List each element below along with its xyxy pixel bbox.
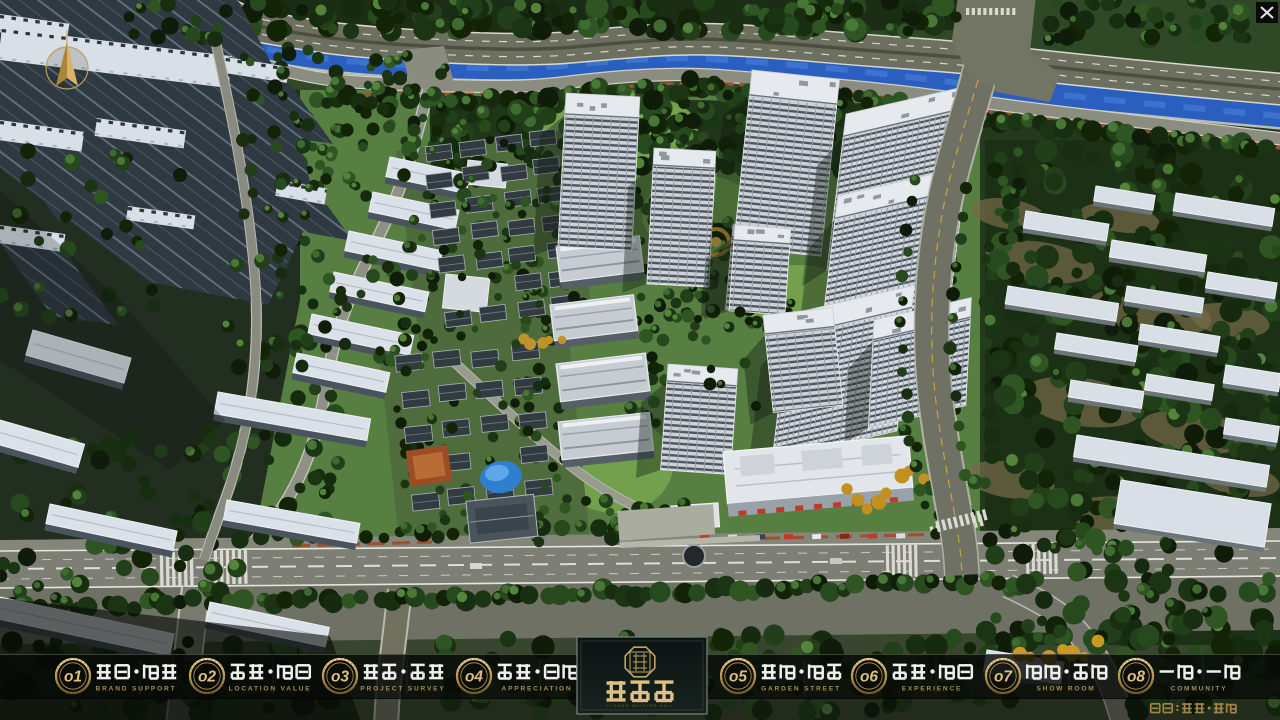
svg-text:FLOWER WHISPER HALL: FLOWER WHISPER HALL	[606, 703, 673, 708]
svg-text:EXPERIENCE: EXPERIENCE	[902, 686, 963, 693]
svg-text:APPRECIATION: APPRECIATION	[502, 686, 573, 693]
svg-text:LOCATION VALUE: LOCATION VALUE	[229, 686, 312, 693]
svg-text:o6: o6	[860, 669, 878, 686]
svg-text:GARDEN STREET: GARDEN STREET	[761, 686, 841, 693]
svg-text:BRAND SUPPORT: BRAND SUPPORT	[96, 686, 177, 693]
svg-text:o7: o7	[994, 669, 1013, 686]
svg-text:COMMUNITY: COMMUNITY	[1171, 686, 1228, 693]
svg-text:SHOW ROOM: SHOW ROOM	[1036, 686, 1095, 693]
svg-text:o4: o4	[465, 669, 483, 686]
svg-text:PROJECT SURVEY: PROJECT SURVEY	[360, 686, 445, 693]
svg-text:o5: o5	[729, 669, 747, 686]
svg-text:o3: o3	[331, 669, 349, 686]
svg-text:o8: o8	[1127, 669, 1145, 686]
svg-text:o1: o1	[64, 669, 82, 686]
svg-text:o2: o2	[198, 669, 216, 686]
